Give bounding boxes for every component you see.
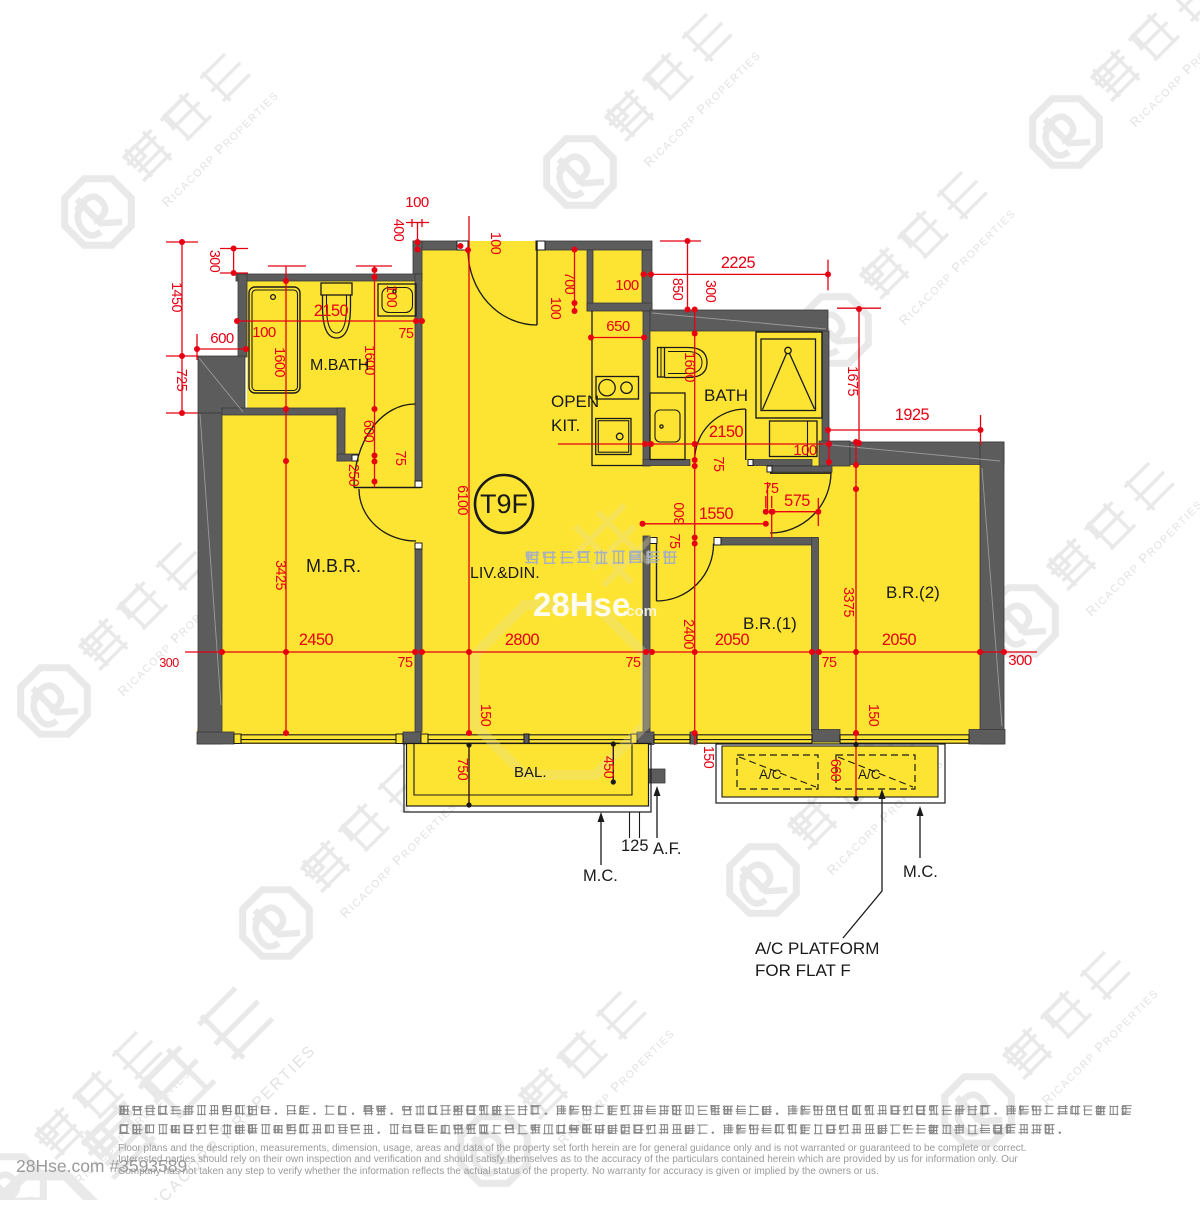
svg-text:3375: 3375 bbox=[840, 587, 856, 617]
svg-text:A.F.: A.F. bbox=[653, 840, 681, 858]
svg-text:M.C.: M.C. bbox=[583, 867, 618, 885]
svg-text:28Hse.com #3593589: 28Hse.com #3593589 bbox=[16, 1156, 187, 1176]
svg-text:300: 300 bbox=[206, 250, 222, 273]
svg-text:A/C: A/C bbox=[759, 767, 782, 782]
svg-text:850: 850 bbox=[669, 278, 685, 301]
svg-text:1600: 1600 bbox=[681, 352, 697, 382]
svg-text:3425: 3425 bbox=[272, 560, 288, 590]
svg-text:300: 300 bbox=[1008, 652, 1032, 669]
svg-text:B.R.(1): B.R.(1) bbox=[743, 614, 797, 633]
svg-text:725: 725 bbox=[173, 369, 189, 392]
svg-text:300: 300 bbox=[159, 656, 179, 670]
svg-text:125: 125 bbox=[621, 837, 649, 855]
svg-text:A/C PLATFORM: A/C PLATFORM bbox=[755, 939, 879, 958]
svg-text:OPEN: OPEN bbox=[551, 392, 599, 411]
svg-text:T9F: T9F bbox=[480, 489, 528, 519]
svg-text:75: 75 bbox=[392, 451, 408, 466]
svg-text:75: 75 bbox=[666, 534, 682, 549]
svg-text:100: 100 bbox=[405, 194, 429, 211]
svg-text:BATH: BATH bbox=[704, 386, 748, 405]
svg-text:2050: 2050 bbox=[715, 631, 750, 649]
svg-text:75: 75 bbox=[710, 457, 726, 472]
svg-text:300: 300 bbox=[672, 502, 688, 525]
svg-text:KIT.: KIT. bbox=[551, 416, 580, 435]
svg-text:BAL.: BAL. bbox=[514, 764, 547, 781]
svg-text:B.R.(2): B.R.(2) bbox=[886, 583, 940, 602]
svg-text:M.B.R.: M.B.R. bbox=[306, 556, 361, 576]
svg-text:.com: .com bbox=[622, 603, 657, 620]
svg-text:28Hse: 28Hse bbox=[533, 586, 630, 623]
svg-text:150: 150 bbox=[477, 704, 493, 727]
svg-text:650: 650 bbox=[606, 318, 630, 335]
svg-text:1925: 1925 bbox=[895, 406, 930, 424]
svg-text:300: 300 bbox=[702, 280, 718, 303]
svg-text:100: 100 bbox=[793, 442, 817, 459]
svg-text:600: 600 bbox=[360, 420, 376, 443]
svg-text:150: 150 bbox=[700, 746, 716, 769]
svg-text:100: 100 bbox=[383, 285, 399, 308]
svg-text:575: 575 bbox=[784, 492, 810, 510]
svg-text:LIV.&DIN.: LIV.&DIN. bbox=[470, 565, 540, 582]
svg-text:Company has not taken any step: Company has not taken any step to verify… bbox=[118, 1166, 879, 1177]
svg-text:450: 450 bbox=[600, 756, 616, 779]
svg-text:2150: 2150 bbox=[314, 302, 349, 320]
svg-text:2400: 2400 bbox=[680, 619, 696, 649]
svg-text:75: 75 bbox=[398, 655, 413, 671]
svg-text:600: 600 bbox=[210, 330, 234, 347]
svg-text:75: 75 bbox=[822, 655, 837, 671]
svg-text:100: 100 bbox=[547, 297, 563, 320]
svg-text:1675: 1675 bbox=[844, 366, 860, 396]
svg-text:M.C.: M.C. bbox=[903, 863, 938, 881]
svg-text:FOR FLAT F: FOR FLAT F bbox=[755, 961, 851, 980]
svg-text:2225: 2225 bbox=[721, 254, 756, 272]
svg-text:750: 750 bbox=[454, 758, 470, 781]
svg-text:400: 400 bbox=[390, 219, 406, 242]
svg-text:100: 100 bbox=[487, 232, 503, 255]
svg-text:2150: 2150 bbox=[709, 423, 744, 441]
svg-text:A/C: A/C bbox=[858, 767, 881, 782]
svg-text:75: 75 bbox=[399, 326, 414, 342]
svg-text:1450: 1450 bbox=[168, 282, 184, 312]
svg-text:700: 700 bbox=[561, 272, 577, 295]
svg-text:150: 150 bbox=[865, 704, 881, 727]
svg-text:1550: 1550 bbox=[699, 505, 734, 523]
svg-text:75: 75 bbox=[764, 481, 779, 497]
svg-text:75: 75 bbox=[626, 655, 641, 671]
svg-text:Floor plans and the descriptio: Floor plans and the description, measure… bbox=[118, 1143, 1026, 1154]
svg-text:M.BATH: M.BATH bbox=[310, 357, 369, 374]
svg-text:100: 100 bbox=[615, 277, 639, 294]
svg-text:Interested parties should rely: Interested parties should rely on their … bbox=[118, 1154, 1018, 1165]
svg-text:1600: 1600 bbox=[271, 347, 287, 377]
svg-text:2800: 2800 bbox=[505, 631, 540, 649]
svg-text:100: 100 bbox=[252, 324, 276, 341]
svg-text:6100: 6100 bbox=[454, 485, 470, 515]
svg-text:660: 660 bbox=[827, 759, 843, 782]
svg-text:2450: 2450 bbox=[299, 631, 334, 649]
svg-text:2050: 2050 bbox=[882, 631, 917, 649]
svg-text:250: 250 bbox=[345, 464, 361, 487]
